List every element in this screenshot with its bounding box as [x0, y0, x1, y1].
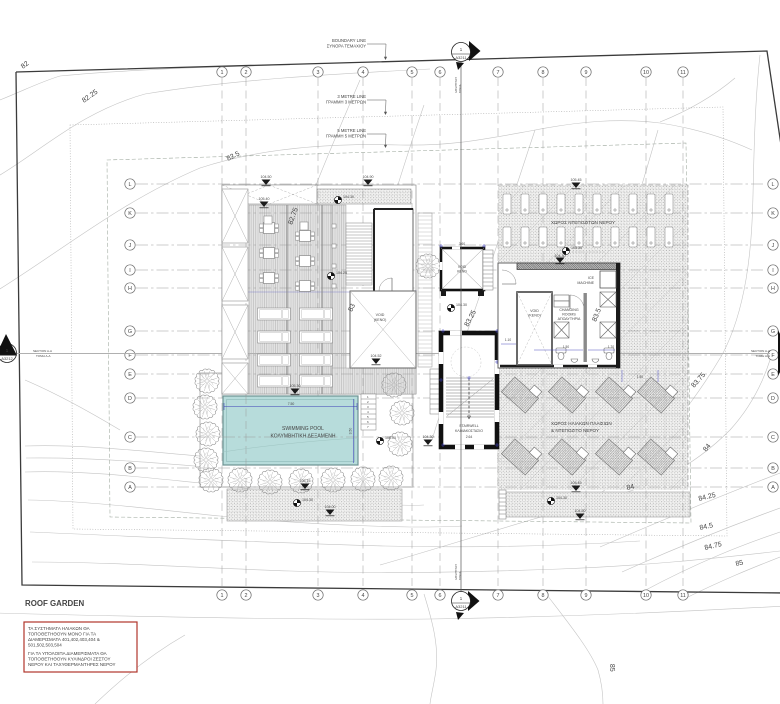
- svg-text:A3212: A3212: [1, 356, 13, 361]
- svg-text:6: 6: [439, 70, 442, 76]
- svg-text:105.45: 105.45: [571, 178, 582, 182]
- svg-text:ΑΠΟΔΥΤΗΡΙΑ: ΑΠΟΔΥΤΗΡΙΑ: [558, 317, 581, 321]
- svg-text:105.40: 105.40: [259, 197, 270, 201]
- svg-text:8: 8: [542, 70, 545, 76]
- svg-text:ΔΙΑΜΕΡΙΣΜΑΤΑ 401,402,403,404 &: ΔΙΑΜΕΡΙΣΜΑΤΑ 401,402,403,404 &: [28, 637, 100, 642]
- svg-text:H: H: [771, 286, 775, 292]
- svg-text:ΓΡΑΜΜΗ 3 ΜΕΤΡΩΝ: ΓΡΑΜΜΗ 3 ΜΕΤΡΩΝ: [326, 100, 366, 105]
- svg-text:VOID: VOID: [376, 313, 385, 317]
- svg-text:1.50: 1.50: [637, 375, 643, 379]
- svg-text:ΤΟΜΕΑ: ΤΟΜΕΑ: [459, 84, 462, 93]
- svg-text:1.50: 1.50: [563, 345, 569, 349]
- svg-text:ΤΟΜΕΑ: ΤΟΜΕΑ: [459, 571, 462, 580]
- svg-text:9: 9: [585, 593, 588, 599]
- svg-text:10: 10: [643, 593, 649, 599]
- svg-text:(ΚΕΝΟ): (ΚΕΝΟ): [528, 314, 541, 318]
- svg-text:G: G: [128, 329, 132, 335]
- svg-text:104.30: 104.30: [555, 254, 566, 258]
- svg-text:ΚΛΙΜΑΚΟΣΤΑΣΙΟ: ΚΛΙΜΑΚΟΣΤΑΣΙΟ: [455, 429, 483, 433]
- svg-text:104.30: 104.30: [343, 195, 354, 199]
- svg-text:3 METRE LINE: 3 METRE LINE: [337, 94, 366, 99]
- svg-text:BOUNDARY LINE: BOUNDARY LINE: [332, 38, 366, 43]
- svg-text:105.15: 105.15: [300, 479, 311, 483]
- svg-text:4: 4: [362, 593, 365, 599]
- svg-text:CHANGING: CHANGING: [559, 308, 579, 312]
- svg-text:105.45: 105.45: [571, 481, 582, 485]
- svg-text:104.30: 104.30: [571, 246, 582, 250]
- svg-text:K: K: [128, 211, 132, 217]
- svg-text:ROOMS: ROOMS: [562, 313, 576, 317]
- svg-text:104.90: 104.90: [363, 175, 374, 179]
- svg-text:ICE: ICE: [588, 276, 595, 280]
- svg-text:ΚΑΤΕΥΘΥΝΣΗ: ΚΑΤΕΥΘΥΝΣΗ: [455, 77, 458, 93]
- svg-text:SECTION A-A: SECTION A-A: [33, 349, 52, 353]
- svg-text:105.00: 105.00: [385, 436, 396, 440]
- svg-text:ΚΑΤΕΥΘΥΝΣΗ: ΚΑΤΕΥΘΥΝΣΗ: [455, 564, 458, 580]
- svg-text:104.30: 104.30: [556, 496, 567, 500]
- svg-text:1.70: 1.70: [608, 345, 614, 349]
- svg-text:6: 6: [439, 593, 442, 599]
- svg-text:VOID: VOID: [530, 309, 539, 313]
- svg-text:SWIMMING POOL: SWIMMING POOL: [282, 426, 324, 432]
- svg-text:85: 85: [608, 664, 615, 672]
- svg-text:ΧΩΡΟΣ ΝΤΕΠΟΖΙΤΩΝ ΝΕΡΟΥ: ΧΩΡΟΣ ΝΤΕΠΟΖΙΤΩΝ ΝΕΡΟΥ: [551, 220, 615, 225]
- svg-text:104.00: 104.00: [325, 505, 336, 509]
- svg-text:11: 11: [680, 70, 686, 76]
- svg-text:8: 8: [542, 593, 545, 599]
- svg-text:104.25: 104.25: [336, 271, 347, 275]
- svg-text:7.50: 7.50: [288, 402, 295, 406]
- svg-text:9: 9: [585, 70, 588, 76]
- svg-text:SECTION A-A: SECTION A-A: [751, 349, 770, 353]
- svg-text:B: B: [771, 466, 775, 472]
- svg-text:E: E: [128, 372, 132, 378]
- svg-text:104.50: 104.50: [261, 175, 272, 179]
- svg-text:STAIRWELL: STAIRWELL: [459, 424, 479, 428]
- svg-text:D: D: [771, 396, 775, 402]
- svg-text:J: J: [129, 243, 132, 249]
- svg-text:I: I: [129, 268, 131, 274]
- svg-text:104.30: 104.30: [423, 435, 434, 439]
- svg-text:3.60: 3.60: [459, 242, 465, 246]
- svg-text:ROOF GARDEN: ROOF GARDEN: [25, 599, 84, 608]
- svg-text:104.30: 104.30: [302, 498, 313, 502]
- svg-text:H: H: [128, 286, 132, 292]
- svg-text:4: 4: [362, 70, 365, 76]
- svg-text:A3211: A3211: [455, 604, 467, 609]
- svg-text:B: B: [128, 466, 132, 472]
- svg-text:ΤΑ ΣΥΣΤΗΜΑΤΑ ΗΛΙΑΚΩΝ ΘΑ: ΤΑ ΣΥΣΤΗΜΑΤΑ ΗΛΙΑΚΩΝ ΘΑ: [28, 626, 90, 631]
- svg-text:ΓΙΑ ΤΑ ΥΠΟΛΟΙΠΑ ΔΙΑΜΕΡΙΣΜΑΤΑ Θ: ΓΙΑ ΤΑ ΥΠΟΛΟΙΠΑ ΔΙΑΜΕΡΙΣΜΑΤΑ ΘΑ: [28, 651, 107, 656]
- svg-text:2.64: 2.64: [466, 435, 473, 439]
- svg-text:E: E: [771, 372, 775, 378]
- svg-text:J: J: [772, 243, 775, 249]
- svg-text:105.30: 105.30: [290, 384, 301, 388]
- svg-text:ΤΟΠΟΘΕΤΗΘΟΥΝ ΚΥΛΙΝΔΡΟΙ ΖΕΣΤΟΥ: ΤΟΠΟΘΕΤΗΘΟΥΝ ΚΥΛΙΝΔΡΟΙ ΖΕΣΤΟΥ: [28, 657, 111, 662]
- svg-text:C: C: [771, 435, 775, 441]
- svg-text:A3211: A3211: [455, 55, 467, 60]
- svg-text:5: 5: [411, 70, 414, 76]
- svg-text:K: K: [771, 211, 775, 217]
- svg-text:I: I: [772, 268, 774, 274]
- svg-text:1.10: 1.10: [505, 338, 511, 342]
- svg-text:D: D: [128, 396, 132, 402]
- svg-text:501,502,503,504: 501,502,503,504: [28, 643, 62, 648]
- svg-text:7: 7: [497, 70, 500, 76]
- svg-text:1: 1: [221, 593, 224, 599]
- svg-text:C: C: [128, 435, 132, 441]
- svg-text:5: 5: [411, 593, 414, 599]
- svg-text:104.50: 104.50: [575, 509, 586, 513]
- svg-text:A: A: [771, 485, 775, 491]
- svg-text:G: G: [771, 329, 775, 335]
- svg-text:3: 3: [317, 593, 320, 599]
- svg-text:11: 11: [680, 593, 686, 599]
- svg-text:5 METRE LINE: 5 METRE LINE: [337, 128, 366, 133]
- svg-text:3.50: 3.50: [349, 428, 353, 435]
- svg-text:ΣΥΝΟΡΑ ΤΕΜΑΧΙΟΥ: ΣΥΝΟΡΑ ΤΕΜΑΧΙΟΥ: [327, 44, 367, 49]
- svg-text:ΚΟΛΥΜΒΗΤΙΚΗ ΔΕΞΑΜΕΝΗ: ΚΟΛΥΜΒΗΤΙΚΗ ΔΕΞΑΜΕΝΗ: [271, 434, 336, 440]
- svg-text:TOMH A-A: TOMH A-A: [756, 354, 770, 358]
- svg-text:ΚΕΝΟ: ΚΕΝΟ: [457, 270, 467, 274]
- svg-text:L: L: [129, 182, 132, 188]
- svg-text:(ΚΕΝΟ): (ΚΕΝΟ): [374, 318, 387, 322]
- svg-text:7: 7: [497, 593, 500, 599]
- svg-text:ΝΕΡΟΥ ΚΑΙ ΤΑΧΥΘΕΡΜΑΝΤΗΡΕΣ ΝΕΡΟ: ΝΕΡΟΥ ΚΑΙ ΤΑΧΥΘΕΡΜΑΝΤΗΡΕΣ ΝΕΡΟΥ: [28, 662, 116, 667]
- svg-text:VOID: VOID: [458, 265, 467, 269]
- svg-text:A: A: [128, 485, 132, 491]
- svg-text:ΓΡΑΜΜΗ 5 ΜΕΤΡΩΝ: ΓΡΑΜΜΗ 5 ΜΕΤΡΩΝ: [326, 134, 366, 139]
- svg-text:L: L: [772, 182, 775, 188]
- svg-text:TOMH A-A: TOMH A-A: [36, 354, 50, 358]
- svg-text:104.52: 104.52: [371, 354, 382, 358]
- svg-text:MACHINE: MACHINE: [577, 281, 594, 285]
- svg-text:3: 3: [317, 70, 320, 76]
- svg-text:1: 1: [221, 70, 224, 76]
- svg-text:ΤΟΠΟΘΕΤΗΘΟΥΝ ΜΟΝΟ ΓΙΑ ΤΑ: ΤΟΠΟΘΕΤΗΘΟΥΝ ΜΟΝΟ ΓΙΑ ΤΑ: [28, 632, 96, 637]
- svg-text:2: 2: [245, 70, 248, 76]
- svg-text:104.30: 104.30: [456, 303, 467, 307]
- svg-text:ΧΩΡΟΣ ΗΛΙΑΚΩΝ ΠΛΑΙΣΙΩΝ: ΧΩΡΟΣ ΗΛΙΑΚΩΝ ΠΛΑΙΣΙΩΝ: [551, 421, 612, 426]
- svg-text:10: 10: [643, 70, 649, 76]
- svg-text:& ΝΤΕΠΟΖΙΤΟ ΝΕΡΟΥ: & ΝΤΕΠΟΖΙΤΟ ΝΕΡΟΥ: [551, 428, 599, 433]
- svg-text:2: 2: [245, 593, 248, 599]
